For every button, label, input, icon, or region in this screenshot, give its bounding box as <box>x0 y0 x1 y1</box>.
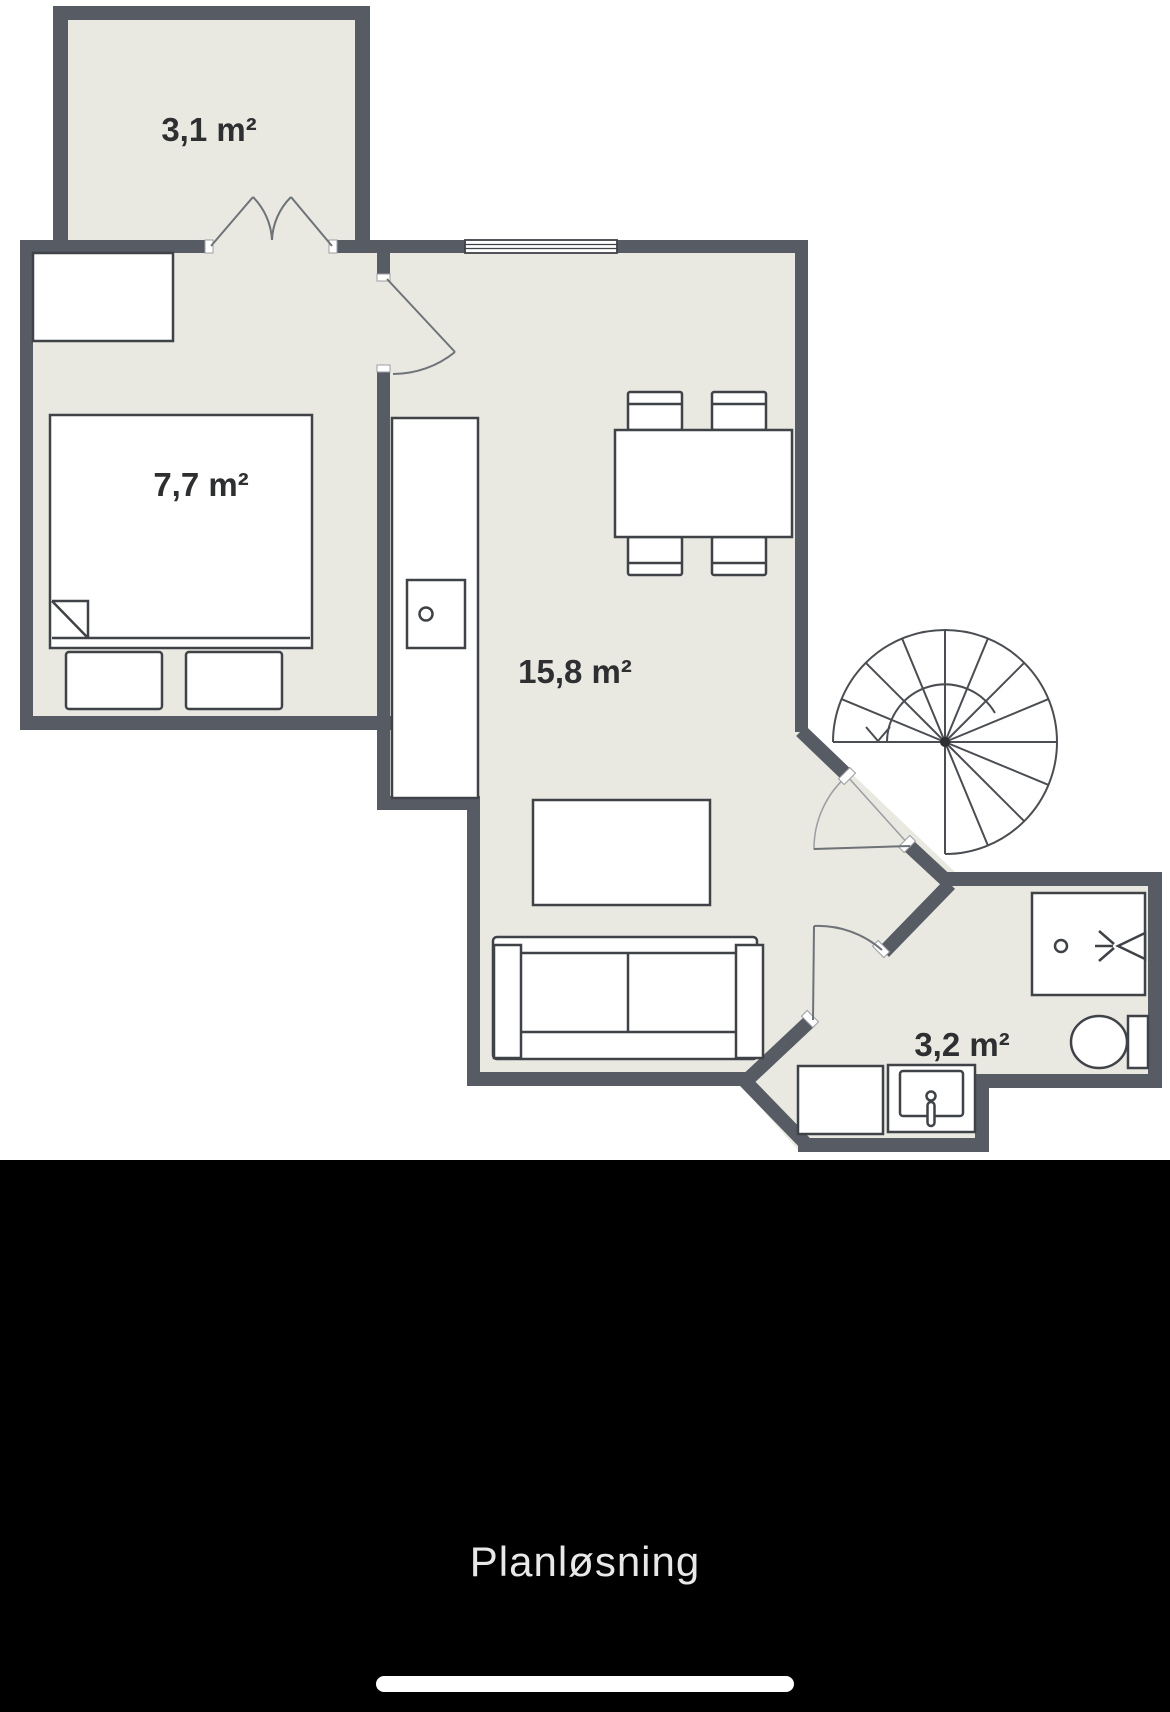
sofa-icon <box>493 937 763 1059</box>
stove-icon <box>407 580 465 648</box>
home-indicator[interactable] <box>376 1676 794 1692</box>
kitchen-counter-icon <box>392 418 478 798</box>
toilet-icon <box>1071 1016 1148 1068</box>
caption-band: Planløsning <box>0 1160 1170 1712</box>
pillow-icon <box>186 652 282 709</box>
wardrobe-icon <box>33 253 173 341</box>
bathroom-area-label: 3,2 m² <box>914 1026 1009 1063</box>
floorplan-image[interactable]: 3,1 m² 7,7 m² 15,8 m² 3,2 m² <box>0 0 1170 1160</box>
bedroom-area-label: 7,7 m² <box>153 466 248 503</box>
living-room-area-label: 15,8 m² <box>518 653 632 690</box>
washing-machine-icon <box>798 1066 883 1134</box>
floorplan-image-viewer: 3,1 m² 7,7 m² 15,8 m² 3,2 m² Planløsning <box>0 0 1170 1712</box>
balcony-area-label: 3,1 m² <box>161 111 256 148</box>
image-caption: Planløsning <box>0 1538 1170 1586</box>
washbasin-icon <box>888 1065 975 1132</box>
shower-icon <box>1032 893 1145 995</box>
pillow-icon <box>66 652 162 709</box>
window-icon <box>465 240 617 253</box>
coffee-table-icon <box>533 800 710 905</box>
